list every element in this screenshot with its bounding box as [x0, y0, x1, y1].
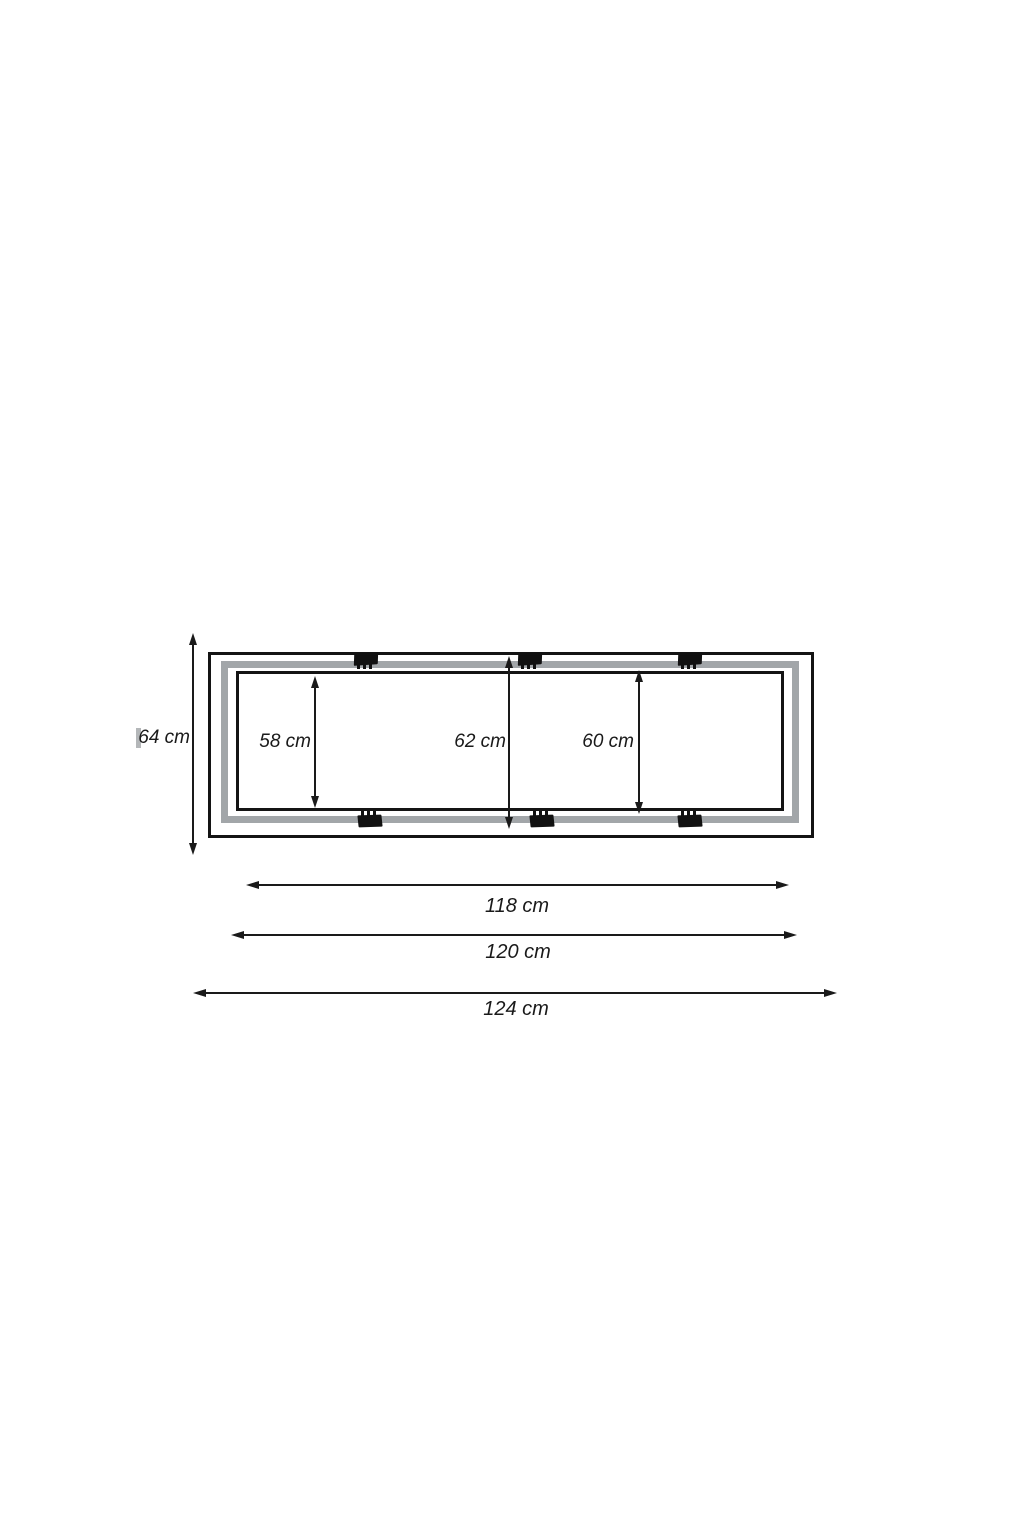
dim-line — [508, 663, 510, 822]
clip-body — [354, 652, 378, 666]
spring-clip-icon — [678, 811, 702, 827]
arrowhead-down-icon — [189, 843, 197, 855]
dim-line — [253, 884, 782, 886]
clip-body — [529, 815, 554, 828]
arrowhead-right-icon — [824, 989, 837, 997]
dim-line — [238, 934, 790, 936]
arrowhead-down-icon — [311, 796, 319, 808]
arrowhead-right-icon — [784, 931, 797, 939]
dim-label-124cm: 124 cm — [454, 998, 578, 1020]
spring-clip-icon — [530, 811, 554, 827]
arrowhead-right-icon — [776, 881, 789, 889]
dim-line — [314, 683, 316, 801]
arrowhead-down-icon — [635, 802, 643, 814]
dim-label-120cm: 120 cm — [456, 941, 580, 963]
dim-label-60cm: 60 cm — [574, 731, 634, 753]
spring-clip-icon — [518, 653, 542, 669]
dim-label-118cm: 118 cm — [455, 895, 579, 917]
dimension-diagram: 64 cm 58 cm 62 cm 60 cm 118 cm 120 cm 12… — [0, 0, 1024, 1536]
spring-clip-icon — [678, 653, 702, 669]
dim-line — [638, 677, 640, 807]
clip-body — [678, 652, 702, 666]
dim-label-64cm: 64 cm — [130, 727, 190, 749]
dim-line — [192, 640, 194, 848]
spring-clip-icon — [358, 811, 382, 827]
clip-body — [677, 815, 702, 828]
arrowhead-down-icon — [505, 817, 513, 829]
spring-clip-icon — [354, 653, 378, 669]
dim-arrow-inner-width — [246, 879, 789, 891]
dim-line — [200, 992, 830, 994]
dim-arrow-inner-right-height — [633, 670, 645, 814]
dim-label-62cm: 62 cm — [446, 731, 506, 753]
dim-arrow-middle-width — [231, 929, 797, 941]
clip-body — [518, 652, 542, 666]
dim-label-58cm: 58 cm — [251, 731, 311, 753]
clip-body — [357, 815, 382, 828]
